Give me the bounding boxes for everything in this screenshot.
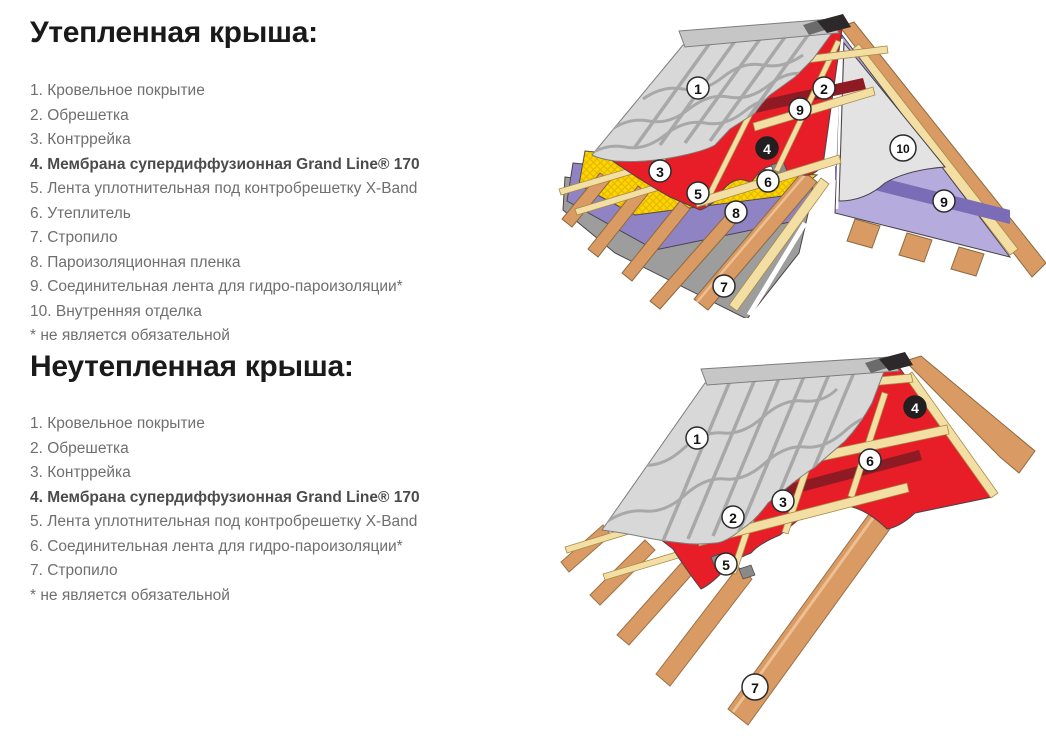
- svg-text:3: 3: [779, 494, 787, 510]
- page: Утепленная крыша: 1. Кровельное покрытие…: [0, 0, 1046, 736]
- uninsulated-roof-diagram: 1463257: [555, 345, 1046, 736]
- legend-item: 3. Контррейка: [30, 461, 420, 486]
- svg-text:4: 4: [911, 400, 919, 416]
- legend-item: 9. Соединительная лента для гидро-пароиз…: [30, 275, 420, 300]
- svg-text:1: 1: [694, 81, 702, 97]
- insulated-roof-title: Утепленная крыша:: [30, 16, 318, 50]
- rafter-tail: [951, 247, 984, 276]
- callout-6: 6: [757, 170, 779, 192]
- callout-4: 4: [904, 396, 926, 418]
- callout-2: 2: [813, 77, 835, 99]
- uninsulated-roof-title: Неутепленная крыша:: [30, 350, 354, 384]
- callout-5: 5: [715, 553, 737, 575]
- callout-7: 7: [713, 275, 735, 297]
- callout-1: 1: [686, 427, 708, 449]
- svg-text:4: 4: [763, 141, 771, 157]
- legend-item: 7. Стропило: [30, 226, 420, 251]
- callout-8: 8: [725, 201, 747, 223]
- legend-item: 2. Обрешетка: [30, 104, 420, 129]
- callout-10: 10: [890, 135, 916, 161]
- svg-text:2: 2: [820, 81, 828, 97]
- svg-text:10: 10: [896, 142, 910, 156]
- svg-text:1: 1: [693, 431, 701, 447]
- svg-text:5: 5: [722, 557, 730, 573]
- legend-item: 6. Соединительная лента для гидро-пароиз…: [30, 535, 420, 560]
- callout-6: 6: [859, 449, 881, 471]
- legend-item: 10. Внутренняя отделка: [30, 300, 420, 325]
- legend-item: 6. Утеплитель: [30, 202, 420, 227]
- svg-text:9: 9: [940, 194, 948, 210]
- legend-item: 1. Кровельное покрытие: [30, 79, 420, 104]
- legend-item: 3. Контррейка: [30, 128, 420, 153]
- svg-text:2: 2: [729, 510, 737, 526]
- legend-item: * не является обязательной: [30, 324, 420, 349]
- svg-text:7: 7: [751, 680, 759, 696]
- svg-text:7: 7: [720, 279, 728, 295]
- callout-4: 4: [756, 137, 778, 159]
- legend-item-bold: 4. Мембрана супердиффузионная Grand Line…: [30, 486, 420, 511]
- insulated-roof-legend: 1. Кровельное покрытие2. Обрешетка3. Кон…: [30, 79, 420, 349]
- svg-text:6: 6: [866, 453, 874, 469]
- callout-5: 5: [687, 182, 709, 204]
- legend-item: 1. Кровельное покрытие: [30, 412, 420, 437]
- legend-item: * не является обязательной: [30, 584, 420, 609]
- svg-text:6: 6: [764, 174, 772, 190]
- interior-gable: [835, 22, 1046, 277]
- callout-3: 3: [649, 160, 671, 182]
- svg-text:3: 3: [656, 164, 664, 180]
- callout-9: 9: [933, 190, 955, 212]
- legend-item: 5. Лента уплотнительная под контробрешет…: [30, 177, 420, 202]
- legend-item: 7. Стропило: [30, 559, 420, 584]
- legend-item: 2. Обрешетка: [30, 437, 420, 462]
- callout-1: 1: [687, 77, 709, 99]
- legend-item: 5. Лента уплотнительная под контробрешет…: [30, 510, 420, 535]
- svg-text:5: 5: [694, 186, 702, 202]
- legend-item-bold: 4. Мембрана супердиффузионная Grand Line…: [30, 153, 420, 178]
- callout-3: 3: [772, 490, 794, 512]
- insulated-roof-diagram: 129410365897: [555, 5, 1046, 318]
- callout-9: 9: [789, 98, 811, 120]
- legend-item: 8. Пароизоляционная пленка: [30, 251, 420, 276]
- uninsulated-roof-legend: 1. Кровельное покрытие2. Обрешетка3. Кон…: [30, 412, 420, 608]
- svg-text:9: 9: [796, 102, 804, 118]
- svg-text:8: 8: [732, 205, 740, 221]
- callout-7: 7: [742, 674, 768, 700]
- rafter-tail: [899, 233, 932, 262]
- callout-2: 2: [722, 506, 744, 528]
